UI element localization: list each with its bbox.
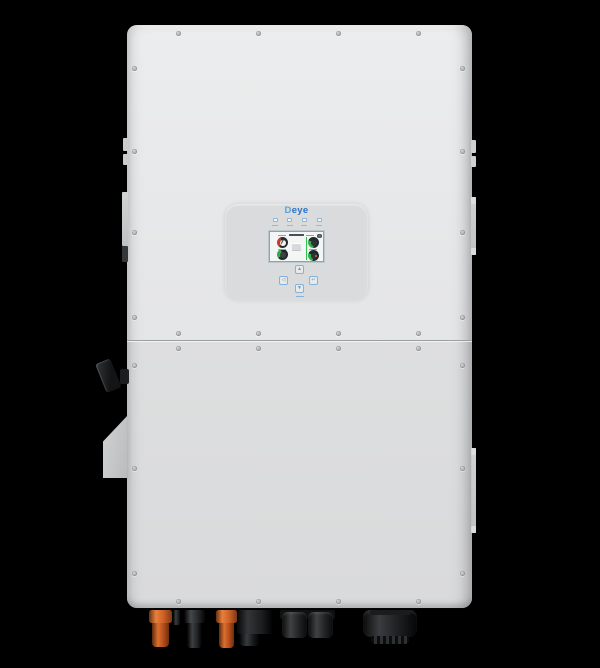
large-cable-gland-collar [370,610,410,615]
screw [416,599,421,604]
gear-icon [317,234,322,239]
screw [460,230,465,235]
screw [336,331,341,336]
up-button[interactable]: ▲ [295,265,304,274]
enter-button[interactable]: ↵ [309,276,318,285]
product-photo-background: Deye [0,0,600,668]
cable-gland [282,612,307,638]
screw [132,363,137,368]
screw [336,599,341,604]
led-label-mark [316,225,322,226]
screen-title-mark [289,234,304,236]
connector-block [237,610,273,634]
screw [460,149,465,154]
gauge-label-mark [278,261,286,262]
led-label-mark [287,225,293,226]
down-button[interactable]: ▼ [295,284,304,293]
screen-title-mark [278,235,286,236]
right-edge-rail [471,197,476,255]
screw [416,331,421,336]
screw [336,346,341,351]
gauge-label-mark [309,249,317,250]
screw [460,363,465,368]
cable-gland [308,612,333,638]
screw [256,599,261,604]
led-label-mark [301,225,307,226]
gauge-bottom-left [277,249,288,260]
screen-title-mark [306,235,314,236]
left-edge-tab [123,138,128,151]
gauge-label-mark [309,261,317,262]
status-led-icon [273,218,278,222]
pv-connector-orange [216,610,237,648]
right-edge-tab [471,140,476,153]
screw [256,346,261,351]
status-led-icon [287,218,292,222]
connector-stem [152,623,169,647]
connector-stem [187,623,202,648]
button-underline-mark [296,296,304,297]
screw [176,331,181,336]
screw [176,31,181,36]
energy-flow-icon [292,243,301,251]
gauge-label-mark [278,249,286,250]
inverter-body: Deye [127,25,472,608]
screw [132,466,137,471]
gauge-top-left [277,237,288,248]
screw [460,571,465,576]
gauge-bottom-right [308,250,319,261]
connector-nut [149,610,172,623]
led-label-mark [272,225,278,226]
screw [132,66,137,71]
esc-button[interactable]: ◁ [279,276,288,285]
screw [176,599,181,604]
screw [132,230,137,235]
left-edge-rail-dark-cap [122,246,128,262]
connector-stem [219,623,234,648]
status-led-icon [302,218,307,222]
small-black-connector [173,610,181,625]
screw [132,315,137,320]
lcd-screen [269,231,324,262]
left-edge-tab [123,154,128,165]
pv-connector-orange [149,610,172,647]
energy-flow-line [306,237,307,260]
status-led-icon [317,218,322,222]
screw [256,31,261,36]
connector-nut [216,610,237,623]
dc-switch-handle[interactable] [95,358,121,393]
connector-nut [184,610,205,623]
screw [132,149,137,154]
screw [256,331,261,336]
display-panel: Deye [225,204,368,300]
screw [132,571,137,576]
pv-connector-black [184,610,205,648]
screw [460,315,465,320]
screw [460,466,465,471]
right-edge-tab [471,156,476,167]
screw [460,66,465,71]
gauge-top-right [308,237,319,248]
left-edge-rail [122,192,128,246]
lower-compartment [127,340,472,609]
screw [416,346,421,351]
brand-logo: Deye [225,205,368,217]
side-mounting-bracket [103,415,128,478]
screw [176,346,181,351]
screw [336,31,341,36]
large-cable-gland-rib [371,636,409,644]
screw [416,31,421,36]
